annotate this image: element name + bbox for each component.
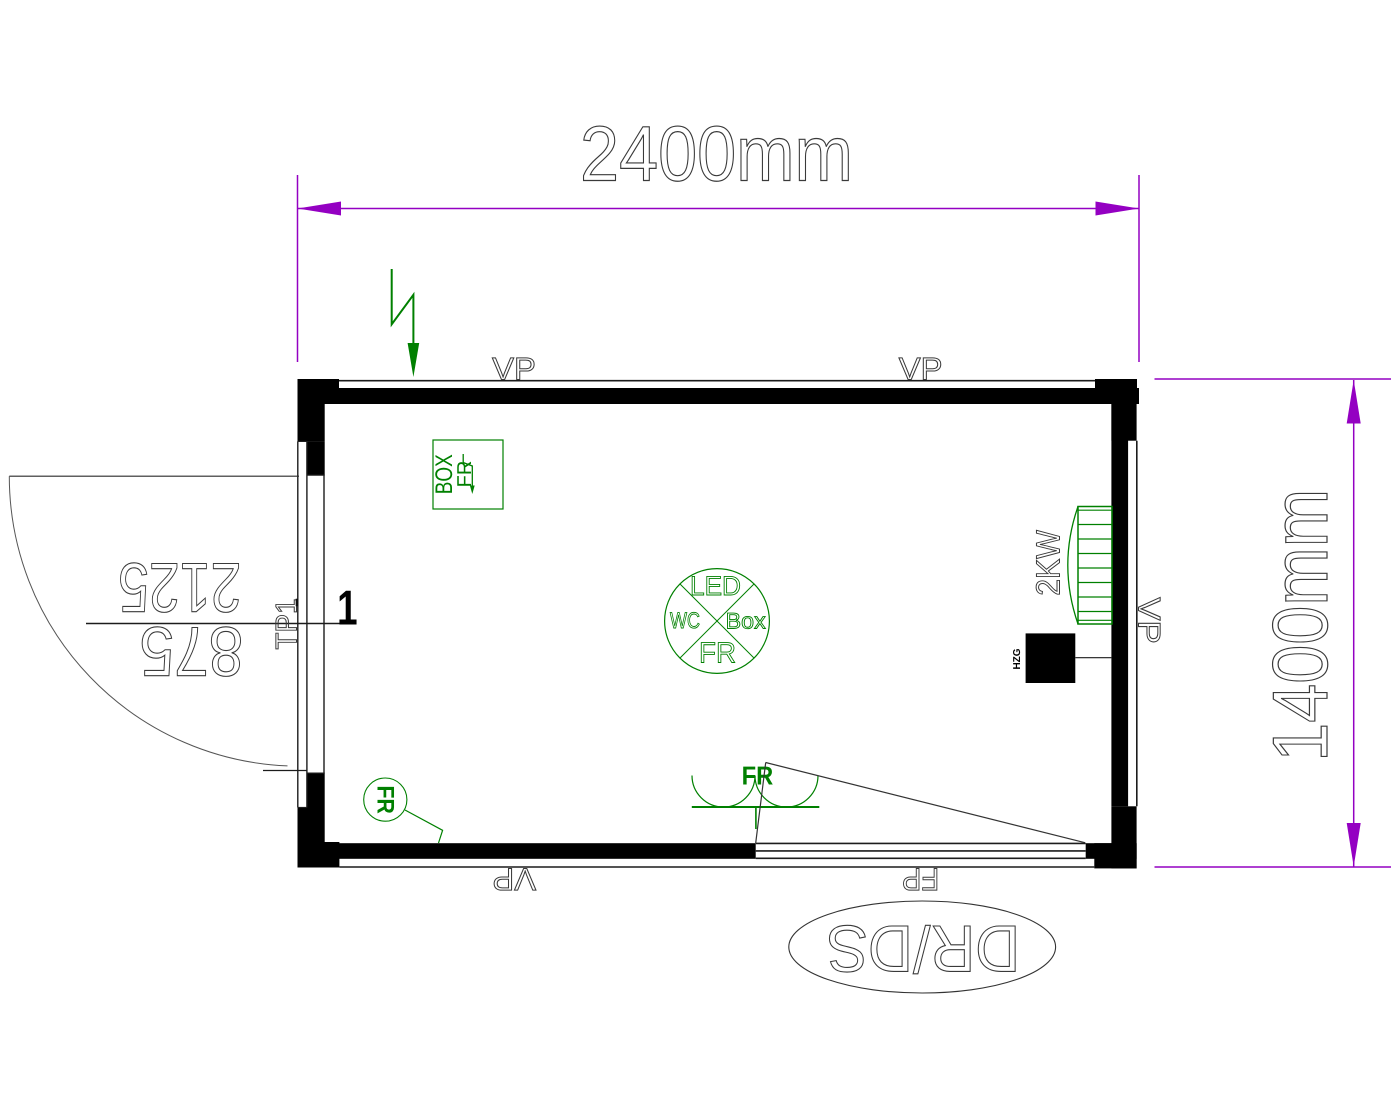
svg-text:TP1: TP1: [271, 599, 304, 650]
svg-text:1: 1: [337, 581, 357, 635]
svg-text:WC: WC: [670, 608, 700, 633]
svg-text:FR: FR: [742, 761, 774, 791]
svg-text:2400mm: 2400mm: [580, 110, 853, 198]
svg-text:DR/DS: DR/DS: [827, 912, 1021, 986]
svg-text:VP: VP: [1132, 597, 1168, 644]
svg-text:FR: FR: [372, 786, 399, 814]
svg-text:VP: VP: [492, 861, 536, 897]
svg-text:875: 875: [140, 613, 244, 691]
svg-text:VP: VP: [899, 350, 943, 386]
svg-text:FR: FR: [699, 638, 736, 670]
svg-text:1400mm: 1400mm: [1256, 489, 1344, 762]
svg-text:HZG: HZG: [1012, 648, 1023, 669]
svg-text:FP: FP: [902, 861, 939, 897]
svg-text:VP: VP: [492, 351, 536, 387]
svg-text:LED: LED: [690, 571, 741, 601]
svg-text:2KW: 2KW: [1031, 530, 1068, 596]
svg-text:Box: Box: [726, 609, 767, 634]
